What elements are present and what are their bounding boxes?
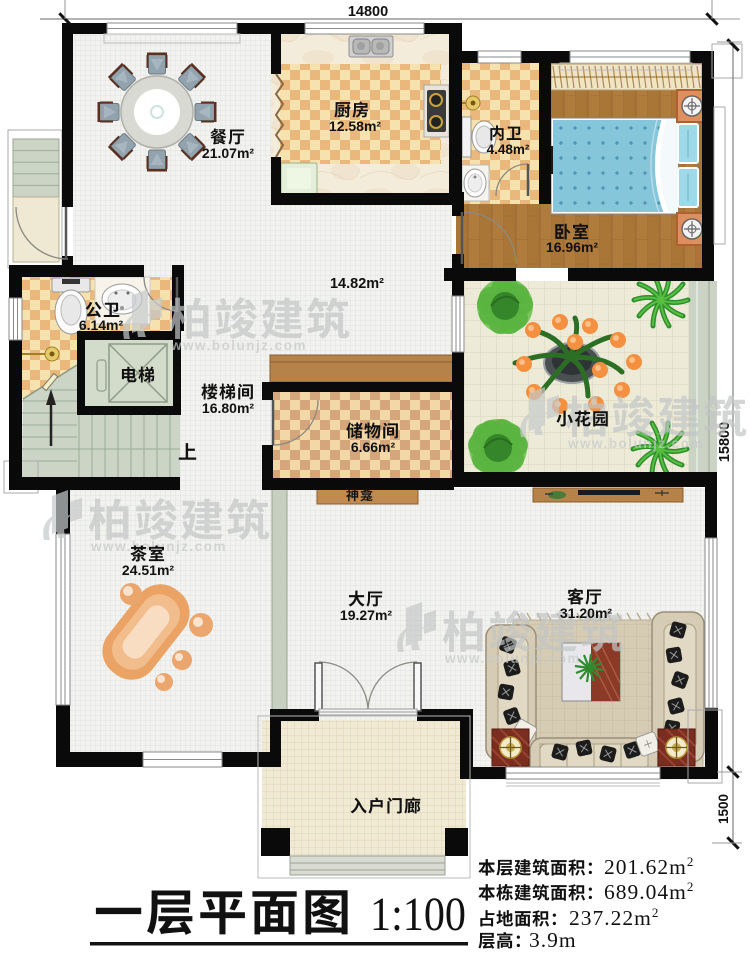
svg-text:19.27m²: 19.27m² <box>340 607 392 623</box>
svg-text:www.bolunjz.com: www.bolunjz.com <box>170 338 307 353</box>
svg-text:6.66m²: 6.66m² <box>351 439 396 455</box>
svg-text:16.80m²: 16.80m² <box>202 400 254 416</box>
svg-text:31.20m²: 31.20m² <box>560 605 612 621</box>
svg-text:www.bolunjz.com: www.bolunjz.com <box>567 436 704 451</box>
svg-text:21.07m²: 21.07m² <box>202 145 254 161</box>
svg-text:1500: 1500 <box>716 794 731 824</box>
svg-text:16.96m²: 16.96m² <box>546 239 598 255</box>
svg-text:24.51m²: 24.51m² <box>122 562 174 578</box>
svg-text:www.bolunjz.com: www.bolunjz.com <box>90 539 227 554</box>
svg-text:3.9m: 3.9m <box>529 928 577 952</box>
svg-text:14800: 14800 <box>348 4 388 20</box>
svg-text:1:100: 1:100 <box>370 888 466 941</box>
svg-text:12.58m²: 12.58m² <box>329 118 381 134</box>
svg-text:689.04m2: 689.04m2 <box>604 879 694 904</box>
svg-text:www.bolunjz.com: www.bolunjz.com <box>444 651 581 666</box>
svg-text:14.82m²: 14.82m² <box>330 276 384 292</box>
svg-text:4.48m²: 4.48m² <box>487 142 530 157</box>
svg-text:237.22m2: 237.22m2 <box>569 905 659 930</box>
svg-text:201.62m2: 201.62m2 <box>604 854 694 879</box>
svg-text:6.14m²: 6.14m² <box>79 317 124 333</box>
